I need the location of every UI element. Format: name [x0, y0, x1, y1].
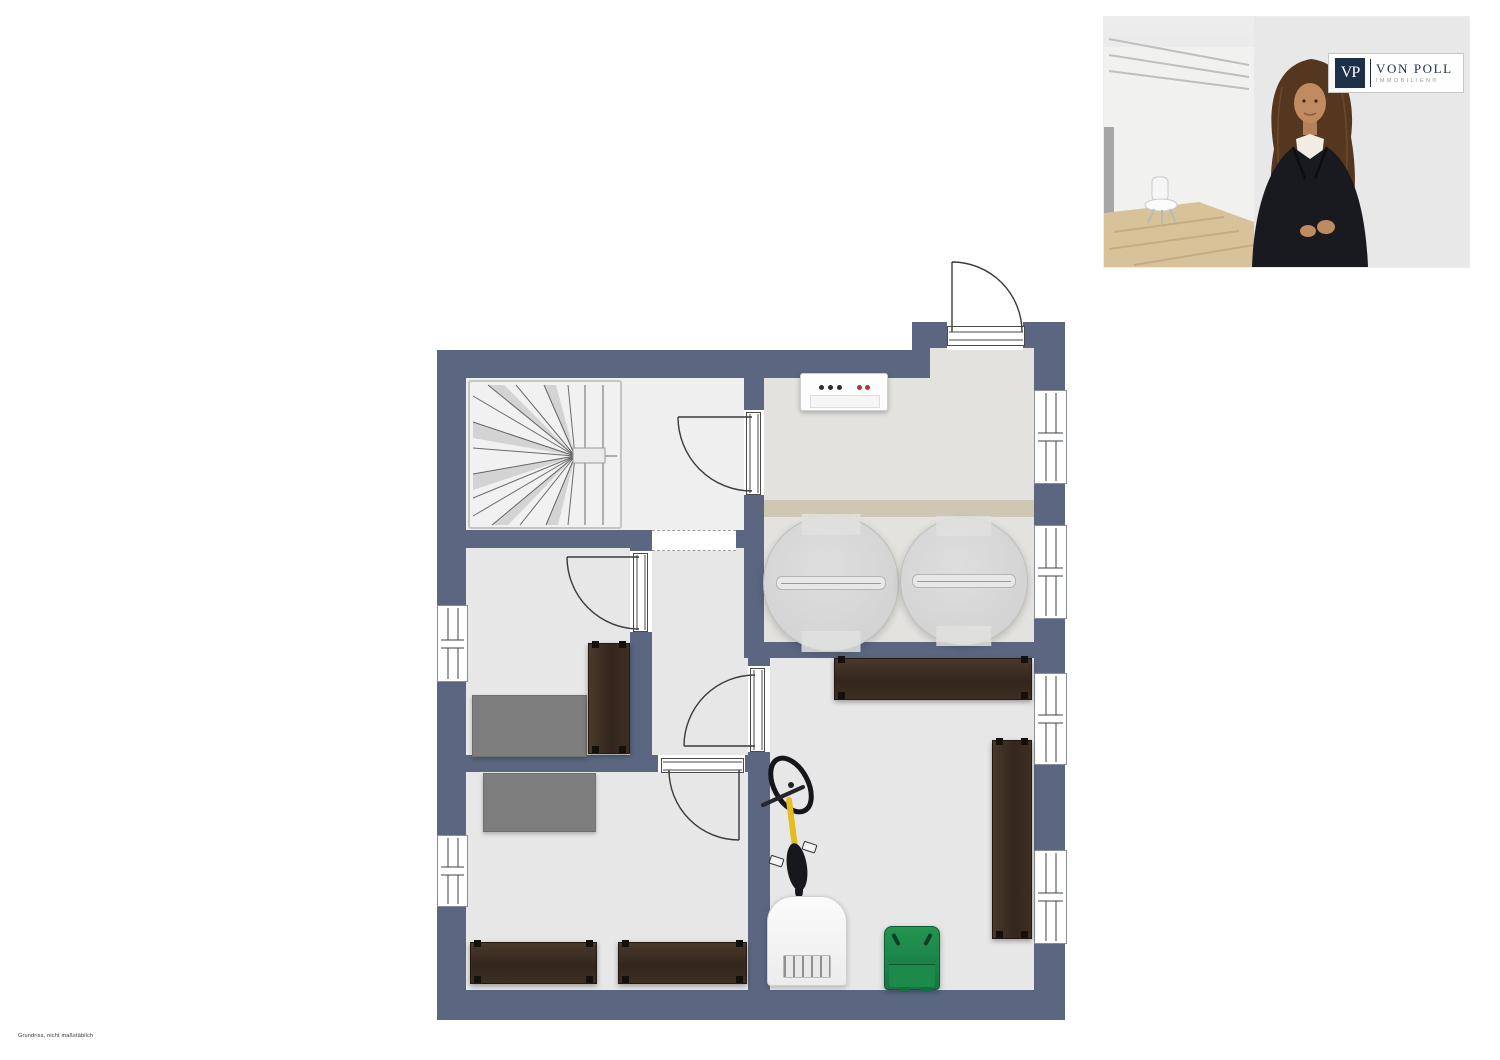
- window-left-2: [437, 835, 468, 907]
- sideboard-storage-top: [834, 658, 1032, 700]
- wall-utility-left-top: [744, 378, 764, 412]
- sideboard-bottom-left-a: [470, 942, 597, 984]
- tank-handle: [912, 574, 1015, 588]
- window-right-2: [1034, 525, 1067, 619]
- control-warning-dots: [857, 385, 862, 390]
- wall-utility-left-bottom: [744, 493, 764, 658]
- green-bin: [884, 926, 940, 990]
- wall-right-e: [1034, 942, 1065, 1020]
- logo-text: VON POLL IMMOBILIEN®: [1376, 62, 1453, 84]
- wall-bottom: [437, 990, 1065, 1020]
- floor-mat-bottom-room: [483, 773, 596, 832]
- tank-handle: [776, 576, 886, 590]
- open-passage: [652, 530, 736, 551]
- bin-flap: [889, 964, 935, 987]
- wall-under-stairs-right: [736, 530, 764, 548]
- middle-room-door-frame: [633, 553, 648, 632]
- tank-notch: [802, 631, 861, 652]
- control-front-panel: [810, 395, 880, 408]
- tank-notch: [936, 626, 991, 646]
- window-left-1: [437, 605, 468, 682]
- freezer: [767, 896, 847, 986]
- bottom-room-door-frame: [661, 758, 744, 773]
- brand-subtitle: IMMOBILIEN®: [1376, 78, 1453, 84]
- window-right-3: [1034, 673, 1067, 765]
- utility-door-frame: [746, 412, 761, 495]
- wall-right-b: [1034, 482, 1065, 525]
- wall-under-stairs-left: [437, 530, 652, 548]
- room-utility-floor-upper: [912, 346, 1034, 386]
- wall-hall-left: [630, 632, 652, 772]
- storage-tank-2: [900, 517, 1028, 645]
- vp-monogram: VP: [1335, 58, 1365, 88]
- logo-divider: [1370, 59, 1371, 87]
- sideboard-middle-room: [588, 643, 630, 754]
- storage-tank-1: [763, 515, 899, 651]
- hallway-floor: [652, 548, 748, 755]
- agent-photo-card: VP VON POLL IMMOBILIEN®: [1104, 17, 1469, 267]
- vonpoll-logo: VP VON POLL IMMOBILIEN®: [1328, 53, 1464, 93]
- hall-storage-door-frame: [750, 668, 765, 752]
- brand-name: VON POLL: [1376, 62, 1453, 76]
- wall-step: [912, 322, 930, 378]
- plan-disclaimer: Grundriss, nicht maßstäblich: [18, 1033, 93, 1039]
- wall-mid-horizontal: [437, 755, 660, 772]
- wall-right-c: [1034, 617, 1065, 673]
- entrance-door-frame: [947, 326, 1025, 346]
- wall-right-d: [1034, 763, 1065, 850]
- vp-initials: VP: [1341, 64, 1359, 82]
- page: VP VON POLL IMMOBILIEN® Grundriss, nicht…: [0, 0, 1500, 1060]
- sideboard-storage-right: [992, 740, 1032, 939]
- wall-right-a: [1034, 322, 1065, 390]
- control-indicator-dots: [819, 385, 824, 390]
- sideboard-bottom-left-b: [618, 942, 747, 984]
- tank-notch: [936, 516, 991, 536]
- window-right-1: [1034, 390, 1067, 484]
- floor-mat-middle-room: [472, 695, 587, 757]
- room-stair-hall-floor: [466, 378, 748, 532]
- wall-left-a: [437, 350, 466, 605]
- heating-control-panel: [800, 373, 888, 411]
- tank-notch: [802, 514, 861, 535]
- window-right-4: [1034, 850, 1067, 944]
